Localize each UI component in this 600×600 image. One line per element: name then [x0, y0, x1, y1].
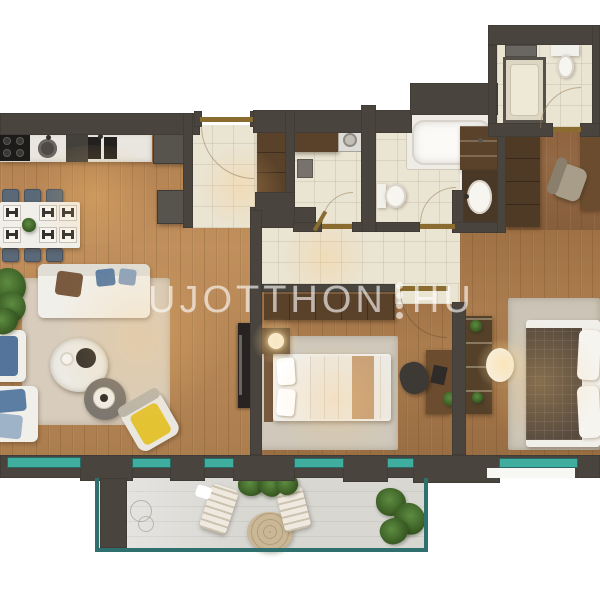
fridge-tall-unit: [153, 131, 185, 164]
middle-bed-pillow-2: [276, 388, 296, 416]
tv-screen: [239, 335, 242, 395]
window-living-right: [133, 459, 170, 467]
middle-bed-duvet: [310, 356, 391, 419]
pantry-tall-unit: [157, 190, 185, 224]
place-setting-2: [40, 206, 56, 220]
window-terrace-door-2: [388, 459, 413, 467]
dining-chair-bottom-3: [46, 248, 63, 262]
wall-living-bedroom: [250, 210, 262, 455]
sink-faucet: [46, 135, 51, 140]
shelf-plant-top: [470, 320, 482, 332]
wall-top-middle: [253, 110, 412, 133]
place-setting-4: [4, 228, 20, 242]
cooktop-burner-1: [3, 137, 11, 145]
washing-machine-drum: [343, 133, 357, 147]
sofa-pillow-blue-1: [95, 268, 116, 287]
sofa-throw-blanket: [54, 270, 83, 297]
built-in-oven: [66, 134, 88, 162]
vanity-sink: [467, 180, 492, 214]
round-sink: [38, 139, 57, 158]
armchair-left-cushion: [0, 336, 18, 376]
middle-bed-pillow-1: [276, 357, 296, 385]
wall-kitchen-entry: [183, 113, 193, 228]
place-setting-6: [60, 228, 76, 242]
wall-ensuite-right: [592, 25, 600, 137]
wall-wc-bottom-right: [352, 222, 363, 232]
wall-top-left: [0, 113, 200, 135]
place-setting-5: [40, 228, 56, 242]
right-bed-pillow-2: [577, 385, 600, 438]
table-centerpiece-plant: [22, 218, 36, 232]
bathroom-door: [420, 224, 455, 229]
wall-bedrooms-divider: [452, 302, 466, 455]
watermark-text-left: UJOTTHON: [148, 281, 387, 319]
wall-top-raised: [410, 83, 498, 115]
right-hall-wardrobe: [506, 135, 540, 227]
toilet-bowl: [385, 184, 406, 208]
wall-bath-right: [497, 123, 506, 233]
wall-ensuite-bottom-right: [580, 123, 600, 137]
bathtub-faucet: [478, 138, 483, 143]
dining-chair-bottom-1: [2, 248, 19, 262]
cooktop-burner-2: [16, 137, 24, 145]
cooktop-burner-3: [3, 149, 11, 157]
place-setting-3: [60, 206, 76, 220]
coffee-table-bowl: [60, 352, 74, 366]
watermark-dots-icon: [396, 282, 403, 319]
wc-door: [322, 224, 352, 229]
floor-corridor: [257, 224, 460, 284]
cooktop-burner-4: [16, 149, 24, 157]
sofa-pillow-blue-2: [118, 268, 137, 286]
double-sink-right: [104, 137, 117, 159]
coffee-table-tray: [76, 348, 96, 368]
dining-chair-top-1: [2, 189, 19, 203]
double-sink-left: [88, 137, 101, 159]
shower-tray: [510, 64, 539, 116]
entry-wardrobe: [257, 131, 285, 192]
window-right-bedroom: [500, 459, 577, 467]
wc-hand-basin: [297, 159, 313, 178]
nightstand-lamp: [268, 333, 284, 349]
shelf-plant-bottom: [472, 392, 483, 403]
small-table-decor: [100, 394, 108, 402]
floor-plan-canvas: UJOTTHON HU: [0, 0, 600, 600]
right-bed-blanket: [526, 328, 582, 440]
dining-chair-bottom-2: [24, 248, 41, 262]
place-setting-1: [4, 206, 20, 220]
chaise-pillow-dark: [0, 389, 27, 414]
middle-bed-runner: [352, 356, 374, 419]
balcony-railing: [95, 478, 428, 552]
window-terrace-door-1: [205, 459, 233, 467]
right-bed-pillow-1: [577, 329, 600, 380]
watermark-text-right: HU: [412, 281, 475, 319]
watermark: UJOTTHON HU: [148, 281, 475, 319]
wall-bath-bottom: [376, 222, 420, 232]
wall-ensuite-top: [488, 25, 600, 45]
facade-pillar-6: [577, 455, 600, 478]
ensuite-vanity: [505, 45, 537, 57]
middle-bed-headboard: [264, 352, 273, 422]
entrance-door: [200, 117, 253, 122]
window-living-left: [8, 458, 80, 467]
ensuite-door: [553, 127, 581, 132]
window-sill-right: [487, 468, 575, 478]
window-middle-bedroom: [295, 459, 343, 467]
dining-chair-top-3: [46, 189, 63, 203]
chaise-pillow-light: [0, 412, 23, 439]
ensuite-toilet-bowl: [557, 55, 574, 78]
reading-pouf: [486, 348, 514, 382]
wall-wc-bathroom: [361, 105, 376, 232]
vanity-faucet: [464, 194, 469, 199]
dining-chair-top-2: [24, 189, 41, 203]
